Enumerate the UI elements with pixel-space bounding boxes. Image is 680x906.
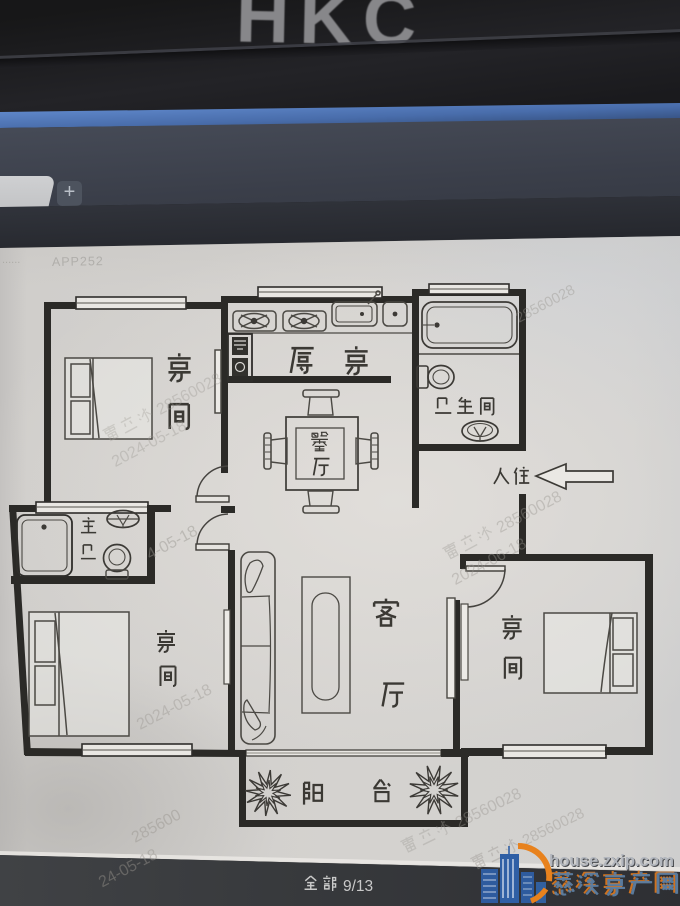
svg-text:......: ...... [2, 254, 20, 266]
svg-text:2024-05-18: 2024-05-18 [134, 681, 215, 733]
svg-text:28560028: 28560028 [494, 488, 565, 536]
svg-text:24-05-18: 24-05-18 [96, 846, 161, 891]
svg-text:9/13: 9/13 [343, 878, 373, 895]
svg-text:APP252: APP252 [52, 254, 104, 269]
svg-text:285600: 285600 [129, 806, 184, 846]
svg-text:house.zxip.com: house.zxip.com [549, 851, 674, 870]
svg-text:28560028: 28560028 [520, 805, 587, 850]
